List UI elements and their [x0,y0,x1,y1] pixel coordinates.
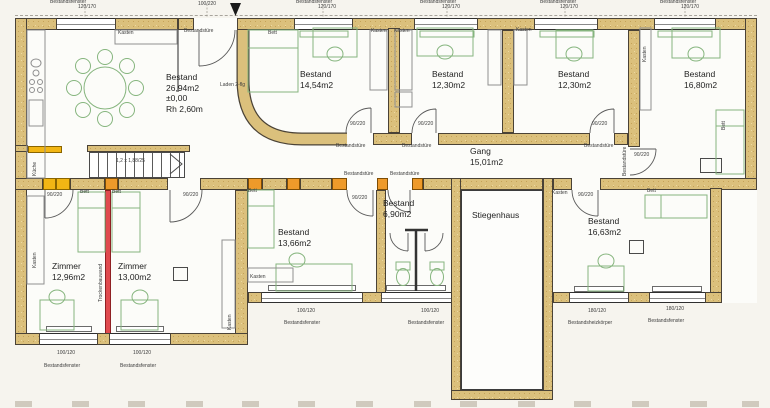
kitchen-cabinet [29,100,43,126]
room-label-bestand-1366: Bestand 13,66m2 [278,227,311,248]
toilet [397,269,410,286]
desk [313,28,357,57]
radiator [420,31,474,37]
door-wc-right [425,233,443,251]
chair [98,112,113,127]
door-room-1366 [347,190,373,216]
annotation-label: Trockenbauwand [99,264,105,302]
desk [417,28,473,56]
annotation-label: 90/220 [634,153,649,159]
annotation-label: Bestandsheizkörper [568,321,612,327]
annotation-label: Kasten [516,28,532,34]
desk [672,28,720,58]
desk [556,30,593,58]
desk-chair [327,47,343,61]
annotation-label: Kasten [118,31,134,37]
annotation-label: Bett [80,190,89,196]
room-label-gang: Gang 15,01m2 [470,146,503,167]
floor-plan: Bestand 26,94m2 ±0,00 Rh 2,60mBestand 14… [0,0,770,408]
bed [248,30,298,92]
furniture-layer [40,28,744,330]
annotation-label: Küche [33,162,39,176]
closet [27,196,44,284]
annotation-label: Bestandstüre [344,172,373,178]
annotation-label: Kasten [552,191,568,197]
annotation-label: 180/120 [666,307,684,313]
annotation-label: 90/220 [47,193,62,199]
desk-chair [132,290,148,304]
window-axis-ticks [85,4,685,17]
stove-burner [38,88,43,93]
annotation-label: 90/220 [350,122,365,128]
radiator [658,31,712,37]
annotation-label: Bestandsfenster [648,319,684,325]
room-label-zimmer-1300: Zimmer 13,00m2 [118,261,151,282]
stove-burner [30,88,35,93]
annotation-label: Bestandstüre [623,147,629,176]
bed [78,192,105,252]
bed [716,110,744,174]
annotation-label: Bestandsfenster [44,364,80,370]
annotation-label: Bestandstüre [390,172,419,178]
annotation-label: Bett [248,189,257,195]
desk-chair [566,47,582,61]
closet [488,30,501,85]
toilet [431,269,444,286]
room-label-zimmer-1296: Zimmer 12,96m2 [52,261,85,282]
room-label-stiegenhaus: Stiegenhaus [472,210,519,221]
bed [248,190,274,248]
annotation-label: 100/220 [198,2,216,8]
dining-table [84,67,126,109]
annotation-label: 180/120 [588,309,606,315]
annotation-label: 120/170 [681,5,699,11]
annotation-label: Bestandsfenster [120,364,156,370]
annotation-label: Bestandsfenster [284,321,320,327]
radiator [300,31,348,37]
room-label-bestand-2694: Bestand 26,94m2 ±0,00 Rh 2,60m [166,72,203,114]
closet [514,30,527,85]
chair [120,103,135,118]
annotation-label: Bett [647,189,656,195]
stair-direction-icon [170,154,182,174]
room-label-bestand-690: Bestand 6,90m2 [383,198,414,219]
room-label-bestand-1454: Bestand 14,54m2 [300,69,333,90]
annotation-label: Bestandstüre [184,29,213,35]
annotation-label: Bestandstüre [402,144,431,150]
annotation-label: 90/220 [578,193,593,199]
chair [67,81,82,96]
room-label-bestand-1230-b: Bestand 12,30m2 [558,69,591,90]
bed [112,192,140,252]
annotation-label: Kasten [643,46,649,62]
annotation-label: 100/120 [421,309,439,315]
entrance-arrow-icon [230,3,241,16]
annotation-label: Kasten [33,252,39,268]
chair [76,59,91,74]
annotation-label: Bestandsfenster [408,321,444,327]
annotation-label: 120/170 [318,5,336,11]
closet [395,30,412,90]
door-wc-left [390,233,408,251]
annotation-label: 100/120 [297,309,315,315]
closet [640,28,651,110]
annotation-label: Laden 2-flg [220,83,245,89]
annotation-label: 120/170 [442,5,460,11]
desk-chair [289,253,305,267]
annotation-label: 90/220 [352,196,367,202]
annotation-label: Kasten [371,29,387,35]
stove-burner [38,80,43,85]
radiator [540,31,594,37]
desk-chair [437,45,453,59]
room-label-bestand-1230-a: Bestand 12,30m2 [432,69,465,90]
kitchen-counter [27,30,45,178]
chair [120,59,135,74]
annotation-label: Bestandstüre [584,144,613,150]
annotation-label: 90/220 [592,122,607,128]
annotation-label: Bett [722,121,728,130]
desk [121,300,158,330]
annotation-label: Bestandstüre [336,144,365,150]
stove-burner [30,80,35,85]
annotation-label: Kasten [228,314,234,330]
annotation-label: Kasten [250,275,266,281]
door-arcs [45,30,656,251]
chair [129,81,144,96]
annotation-label: Kasten [394,29,410,35]
annotation-label: 100/120 [57,351,75,357]
annotation-label: Bett [112,190,121,196]
desk-chair [49,290,65,304]
chair [98,50,113,65]
annotation-label: 1,2 x 1,88/25 [116,159,145,165]
nightstand [395,92,412,107]
annotation-label: 90/220 [183,193,198,199]
desk [588,266,624,291]
closet [370,30,387,90]
chair [76,103,91,118]
bed [645,195,707,218]
annotation-label: 100/120 [133,351,151,357]
annotation-label: Bett [268,31,277,37]
annotation-label: 120/170 [78,5,96,11]
desk-chair [688,47,704,61]
room-label-bestand-1680: Bestand 16,80m2 [684,69,717,90]
room-label-bestand-1663: Bestand 16,63m2 [588,216,621,237]
annotation-label: 120/170 [560,5,578,11]
annotation-label: 90/220 [418,122,433,128]
kitchen-sink-small [33,70,39,76]
door-top-entrance [199,30,235,66]
kitchen-sink [31,59,41,67]
